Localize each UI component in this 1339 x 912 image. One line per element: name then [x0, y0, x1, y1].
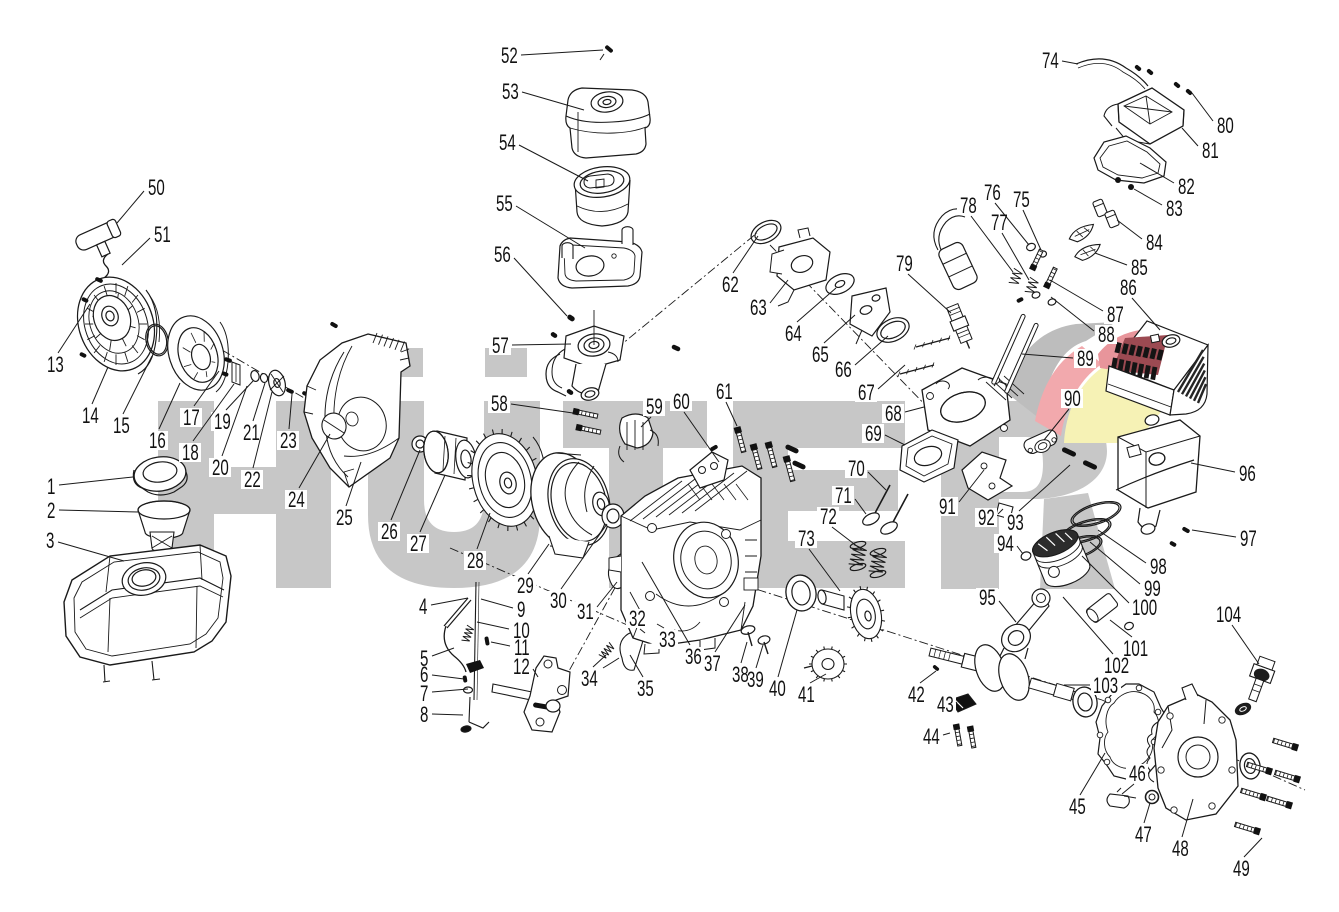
svg-text:17: 17 [183, 406, 200, 431]
svg-text:14: 14 [82, 404, 99, 429]
svg-text:54: 54 [499, 131, 516, 156]
svg-text:104: 104 [1216, 603, 1241, 628]
svg-text:48: 48 [1172, 837, 1189, 862]
svg-text:21: 21 [243, 421, 260, 446]
svg-text:66: 66 [835, 358, 852, 383]
svg-text:27: 27 [410, 532, 427, 557]
svg-text:60: 60 [673, 390, 690, 415]
svg-text:79: 79 [896, 252, 913, 277]
svg-text:100: 100 [1132, 596, 1157, 621]
svg-text:8: 8 [420, 703, 428, 728]
svg-text:12: 12 [513, 655, 530, 680]
svg-text:71: 71 [835, 484, 852, 509]
svg-text:33: 33 [659, 628, 676, 653]
svg-text:83: 83 [1166, 197, 1183, 222]
svg-text:20: 20 [212, 456, 229, 481]
svg-text:40: 40 [769, 677, 786, 702]
svg-text:4: 4 [419, 595, 428, 620]
svg-text:73: 73 [798, 527, 815, 552]
svg-text:26: 26 [381, 520, 398, 545]
svg-text:63: 63 [750, 296, 767, 321]
svg-text:29: 29 [517, 574, 534, 599]
svg-text:50: 50 [148, 176, 165, 201]
svg-text:23: 23 [280, 429, 297, 454]
svg-text:72: 72 [820, 505, 837, 530]
svg-text:36: 36 [685, 645, 702, 670]
svg-text:94: 94 [997, 532, 1014, 557]
svg-text:81: 81 [1202, 139, 1219, 164]
svg-text:97: 97 [1240, 527, 1257, 552]
svg-text:46: 46 [1129, 762, 1146, 787]
svg-text:92: 92 [978, 506, 995, 531]
svg-text:59: 59 [646, 395, 663, 420]
svg-text:95: 95 [979, 586, 996, 611]
svg-text:96: 96 [1239, 462, 1256, 487]
svg-text:51: 51 [154, 223, 171, 248]
svg-text:57: 57 [492, 334, 509, 359]
svg-text:53: 53 [502, 80, 519, 105]
svg-text:43: 43 [937, 693, 954, 718]
svg-text:1: 1 [47, 475, 55, 500]
svg-text:13: 13 [47, 353, 64, 378]
svg-text:49: 49 [1233, 857, 1250, 882]
svg-text:41: 41 [798, 683, 815, 708]
svg-text:16: 16 [149, 429, 166, 454]
svg-text:2: 2 [47, 499, 55, 524]
svg-text:31: 31 [577, 600, 594, 625]
svg-text:64: 64 [785, 322, 802, 347]
svg-text:58: 58 [491, 392, 508, 417]
svg-text:44: 44 [923, 725, 940, 750]
svg-text:24: 24 [288, 488, 305, 513]
svg-text:77: 77 [991, 211, 1008, 236]
svg-text:70: 70 [848, 457, 865, 482]
svg-text:32: 32 [629, 607, 646, 632]
svg-text:42: 42 [908, 683, 925, 708]
svg-text:80: 80 [1217, 114, 1234, 139]
svg-text:34: 34 [581, 667, 598, 692]
svg-text:35: 35 [637, 677, 654, 702]
svg-text:45: 45 [1069, 795, 1086, 820]
svg-text:28: 28 [467, 549, 484, 574]
svg-text:86: 86 [1120, 276, 1137, 301]
svg-text:103: 103 [1093, 674, 1118, 699]
svg-text:75: 75 [1013, 188, 1030, 213]
svg-text:67: 67 [858, 381, 875, 406]
svg-text:76: 76 [984, 181, 1001, 206]
svg-text:52: 52 [501, 44, 518, 69]
svg-text:47: 47 [1135, 823, 1152, 848]
svg-text:62: 62 [722, 273, 739, 298]
svg-text:89: 89 [1077, 347, 1094, 372]
svg-text:84: 84 [1146, 231, 1163, 256]
svg-text:74: 74 [1042, 49, 1059, 74]
svg-text:37: 37 [704, 652, 721, 677]
svg-text:68: 68 [885, 402, 902, 427]
svg-text:22: 22 [244, 468, 261, 493]
svg-text:25: 25 [336, 506, 353, 531]
svg-text:98: 98 [1150, 555, 1167, 580]
svg-text:19: 19 [214, 410, 231, 435]
svg-text:88: 88 [1098, 323, 1115, 348]
svg-text:30: 30 [550, 589, 567, 614]
svg-text:39: 39 [747, 668, 764, 693]
svg-text:69: 69 [865, 422, 882, 447]
svg-text:38: 38 [732, 663, 749, 688]
svg-text:90: 90 [1064, 387, 1081, 412]
svg-text:18: 18 [182, 441, 199, 466]
svg-text:15: 15 [113, 414, 130, 439]
svg-text:78: 78 [960, 194, 977, 219]
svg-text:82: 82 [1178, 175, 1195, 200]
svg-text:61: 61 [716, 380, 733, 405]
svg-text:55: 55 [496, 192, 513, 217]
svg-text:91: 91 [939, 495, 956, 520]
svg-text:65: 65 [812, 343, 829, 368]
svg-text:56: 56 [494, 243, 511, 268]
svg-text:3: 3 [46, 529, 54, 554]
